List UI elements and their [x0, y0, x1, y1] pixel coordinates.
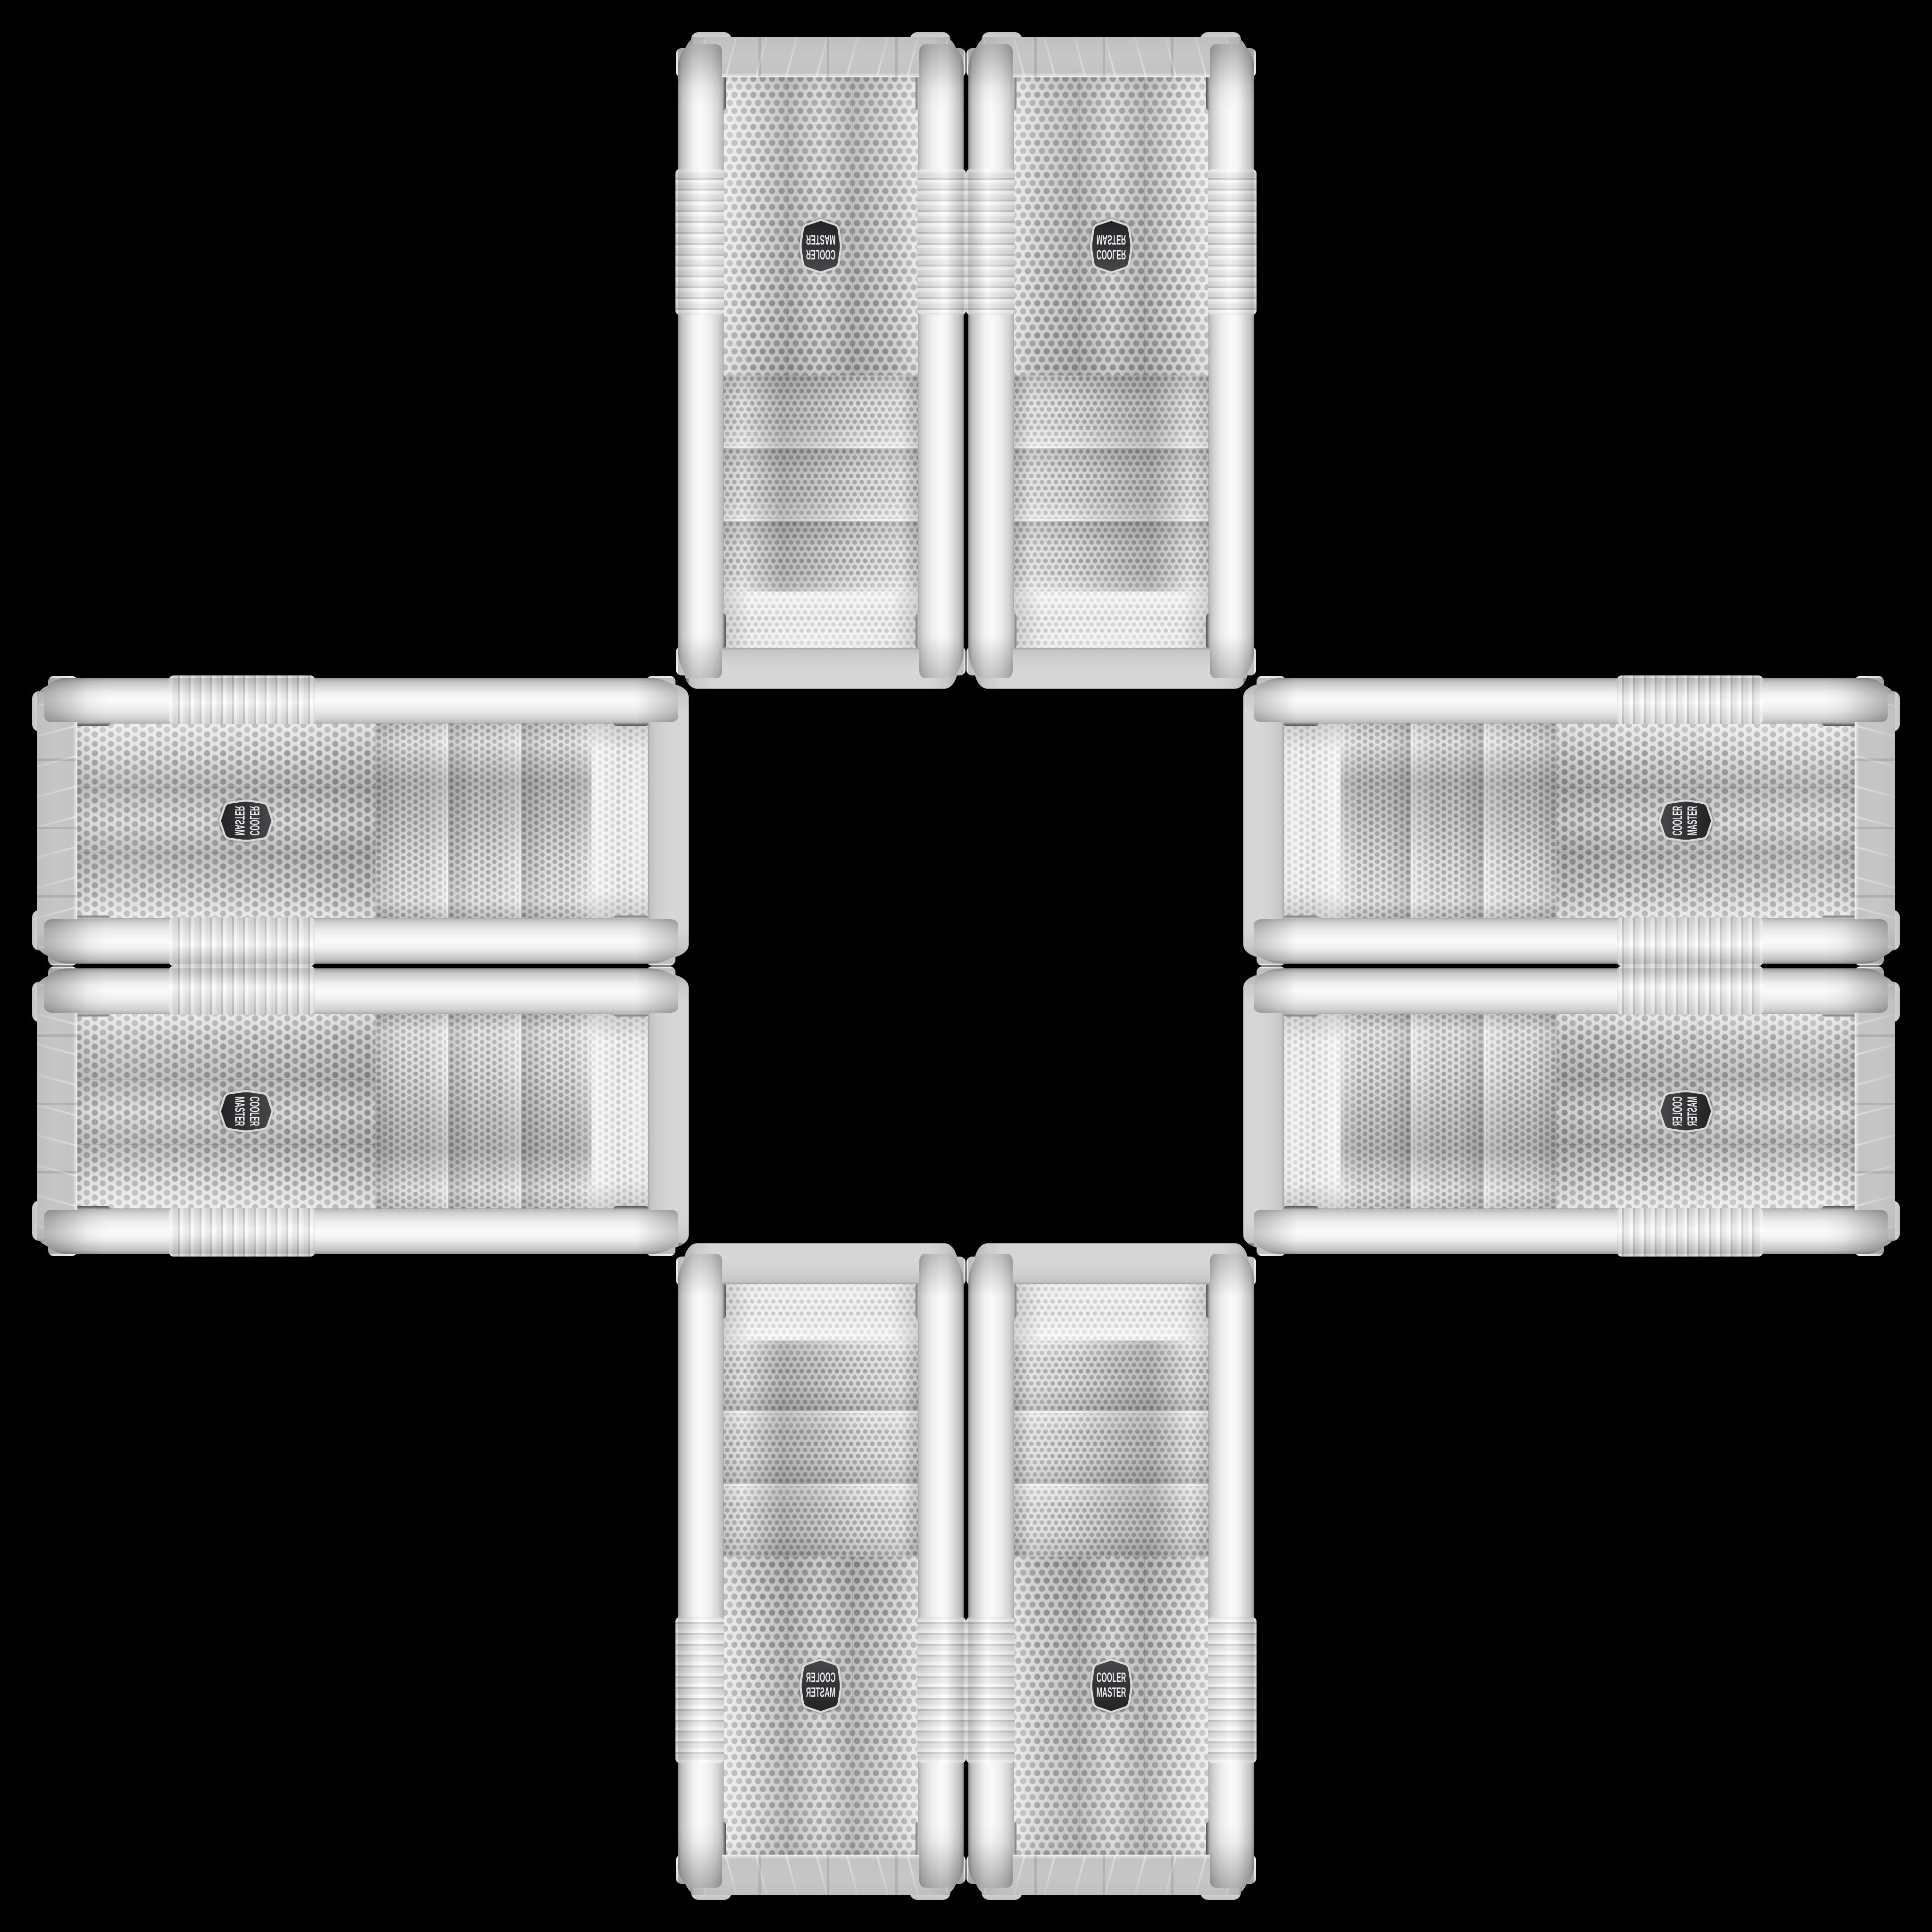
drive-bay-cover — [723, 374, 918, 446]
drive-bay-cover — [519, 1014, 591, 1209]
badge-text-line1: COOLER — [247, 806, 262, 836]
mesh-seam — [1557, 1144, 1859, 1145]
drive-bay-cover — [723, 519, 918, 591]
mesh-seam — [73, 852, 375, 853]
drive-bay-cover — [374, 1014, 446, 1209]
badge-text-line2: MASTER — [1685, 806, 1700, 836]
bottom-cap — [1855, 683, 1895, 958]
badge-text-line2: MASTER — [1097, 1685, 1126, 1700]
side-rail-left — [968, 44, 1013, 678]
drive-bay-area — [1341, 723, 1557, 918]
drive-bay-cover — [1014, 519, 1209, 591]
mesh-seam — [1557, 852, 1859, 853]
mesh-seam — [787, 1557, 788, 1859]
top-cap — [683, 1243, 958, 1284]
cooler-master-badge-icon: COOLER MASTER — [1658, 1088, 1714, 1134]
top-cap — [974, 1243, 1249, 1284]
badge-text-line2: MASTER — [806, 232, 836, 247]
bottom-cap — [1855, 974, 1895, 1249]
bottom-cap — [974, 1855, 1249, 1895]
case-top-right: COOLER MASTER — [968, 37, 1254, 689]
case-right-bottom: COOLER MASTER — [1243, 968, 1895, 1254]
case-top-left: COOLER MASTER — [678, 37, 964, 689]
cooler-master-badge-icon: COOLER MASTER — [218, 798, 274, 844]
drive-bay-area — [723, 1341, 918, 1557]
cooler-master-badge-icon: COOLER MASTER — [798, 218, 844, 274]
drive-bay-cover — [1486, 723, 1558, 918]
drive-bay-area — [375, 723, 591, 918]
top-cap — [648, 683, 689, 958]
drive-bay-cover — [1413, 723, 1486, 918]
drive-bay-cover — [1341, 723, 1413, 918]
drive-bay-cover — [1014, 1486, 1209, 1558]
badge-text-line1: COOLER — [1097, 247, 1126, 262]
top-cap — [1243, 974, 1284, 1249]
bottom-cap — [37, 683, 77, 958]
badge-text-line2: MASTER — [1685, 1097, 1700, 1126]
mesh-seam — [1079, 73, 1080, 375]
side-rail-right — [1254, 678, 1888, 722]
front-mesh-panel: COOLER MASTER — [1271, 1014, 1859, 1209]
case-front-panel: COOLER MASTER — [37, 678, 689, 964]
rail-grip-ribs — [966, 1617, 1015, 1763]
rail-grip-ribs — [169, 1208, 315, 1257]
rail-grip-ribs — [675, 1617, 724, 1763]
front-mesh-panel: COOLER MASTER — [723, 1271, 918, 1859]
side-rail-right — [1210, 1254, 1254, 1888]
case-left-top: COOLER MASTER — [37, 678, 689, 964]
drive-bay-area — [723, 375, 918, 591]
front-mesh-panel: COOLER MASTER — [1014, 73, 1209, 661]
top-cap — [974, 648, 1249, 689]
mesh-seam — [852, 1557, 853, 1859]
top-cap — [1243, 683, 1284, 958]
rail-grip-ribs — [1208, 1617, 1257, 1763]
side-rail-right — [44, 678, 678, 722]
front-mesh-panel: COOLER MASTER — [1271, 723, 1859, 918]
rail-grip-ribs — [1617, 675, 1763, 724]
side-rail-right — [1254, 1210, 1888, 1254]
mesh-seam — [1557, 787, 1859, 788]
drive-bay-cover — [1486, 1014, 1558, 1209]
rail-grip-ribs — [169, 917, 315, 966]
badge-text-line2: MASTER — [232, 1097, 247, 1126]
bottom-cap — [683, 37, 958, 77]
mesh-seam — [73, 1144, 375, 1145]
drive-bay-cover — [1014, 1413, 1209, 1486]
side-rail-left — [919, 44, 964, 678]
rail-grip-ribs — [917, 1617, 966, 1763]
drive-bay-cover — [519, 723, 591, 918]
front-mesh-panel: COOLER MASTER — [1014, 1271, 1209, 1859]
cooler-master-badge-icon: COOLER MASTER — [1088, 1658, 1134, 1714]
mesh-seam — [1144, 73, 1145, 375]
case-front-panel: COOLER MASTER — [1243, 678, 1895, 964]
case-front-panel: COOLER MASTER — [37, 968, 689, 1254]
side-rail-left — [919, 1254, 964, 1888]
badge-text-line1: COOLER — [1670, 1097, 1685, 1126]
front-mesh-panel: COOLER MASTER — [73, 1014, 661, 1209]
mesh-seam — [73, 1079, 375, 1080]
mesh-seam — [852, 73, 853, 375]
mesh-seam — [787, 73, 788, 375]
badge-text-line1: COOLER — [247, 1097, 262, 1126]
product-collage-canvas: COOLER MASTER — [0, 0, 1932, 1932]
case-front-panel: COOLER MASTER — [968, 37, 1254, 689]
drive-bay-cover — [446, 1014, 519, 1209]
bottom-cap — [683, 1855, 958, 1895]
top-cap — [648, 974, 689, 1249]
side-rail-left — [1254, 919, 1888, 964]
side-rail-left — [1254, 968, 1888, 1013]
top-cap — [683, 648, 958, 689]
front-mesh-panel: COOLER MASTER — [73, 723, 661, 918]
mesh-seam — [73, 787, 375, 788]
drive-bay-area — [1014, 375, 1209, 591]
mesh-seam — [1079, 1557, 1080, 1859]
case-bottom-right: COOLER MASTER — [968, 1243, 1254, 1895]
rail-grip-ribs — [169, 675, 315, 724]
rail-grip-ribs — [1617, 1208, 1763, 1257]
badge-text-line1: COOLER — [806, 1670, 836, 1685]
drive-bay-cover — [446, 723, 519, 918]
side-rail-left — [44, 968, 678, 1013]
front-mesh-panel: COOLER MASTER — [723, 73, 918, 661]
rail-grip-ribs — [1617, 966, 1763, 1015]
case-front-panel: COOLER MASTER — [968, 1243, 1254, 1895]
cooler-master-badge-icon: COOLER MASTER — [218, 1088, 274, 1134]
badge-text-line1: COOLER — [1670, 806, 1685, 836]
drive-bay-cover — [374, 723, 446, 918]
drive-bay-area — [375, 1014, 591, 1209]
drive-bay-cover — [1014, 1341, 1209, 1413]
cooler-master-badge-icon: COOLER MASTER — [1658, 798, 1714, 844]
drive-bay-cover — [1341, 1014, 1413, 1209]
drive-bay-area — [1014, 1341, 1209, 1557]
badge-text-line2: MASTER — [232, 806, 247, 836]
rail-grip-ribs — [169, 966, 315, 1015]
drive-bay-cover — [723, 1341, 918, 1413]
side-rail-right — [678, 1254, 722, 1888]
mesh-seam — [1557, 1079, 1859, 1080]
case-front-panel: COOLER MASTER — [678, 1243, 964, 1895]
rail-grip-ribs — [917, 169, 966, 315]
drive-bay-cover — [723, 446, 918, 519]
side-rail-left — [44, 919, 678, 964]
cooler-master-badge-icon: COOLER MASTER — [798, 1658, 844, 1714]
case-left-bottom: COOLER MASTER — [37, 968, 689, 1254]
side-rail-left — [968, 1254, 1013, 1888]
bottom-cap — [37, 974, 77, 1249]
case-front-panel: COOLER MASTER — [1243, 968, 1895, 1254]
badge-text-line1: COOLER — [1097, 1670, 1126, 1685]
drive-bay-cover — [723, 1486, 918, 1558]
badge-text-line2: MASTER — [806, 1685, 836, 1700]
bottom-cap — [974, 37, 1249, 77]
drive-bay-cover — [1014, 374, 1209, 446]
side-rail-right — [678, 44, 722, 678]
badge-text-line1: COOLER — [806, 247, 836, 262]
case-right-top: COOLER MASTER — [1243, 678, 1895, 964]
case-front-panel: COOLER MASTER — [678, 37, 964, 689]
rail-grip-ribs — [966, 169, 1015, 315]
drive-bay-cover — [1413, 1014, 1486, 1209]
rail-grip-ribs — [675, 169, 724, 315]
rail-grip-ribs — [1208, 169, 1257, 315]
drive-bay-cover — [1014, 446, 1209, 519]
side-rail-right — [1210, 44, 1254, 678]
badge-text-line2: MASTER — [1097, 232, 1126, 247]
mesh-seam — [1144, 1557, 1145, 1859]
rail-grip-ribs — [1617, 917, 1763, 966]
drive-bay-cover — [723, 1413, 918, 1486]
cooler-master-badge-icon: COOLER MASTER — [1088, 218, 1134, 274]
case-bottom-left: COOLER MASTER — [678, 1243, 964, 1895]
side-rail-right — [44, 1210, 678, 1254]
drive-bay-area — [1341, 1014, 1557, 1209]
